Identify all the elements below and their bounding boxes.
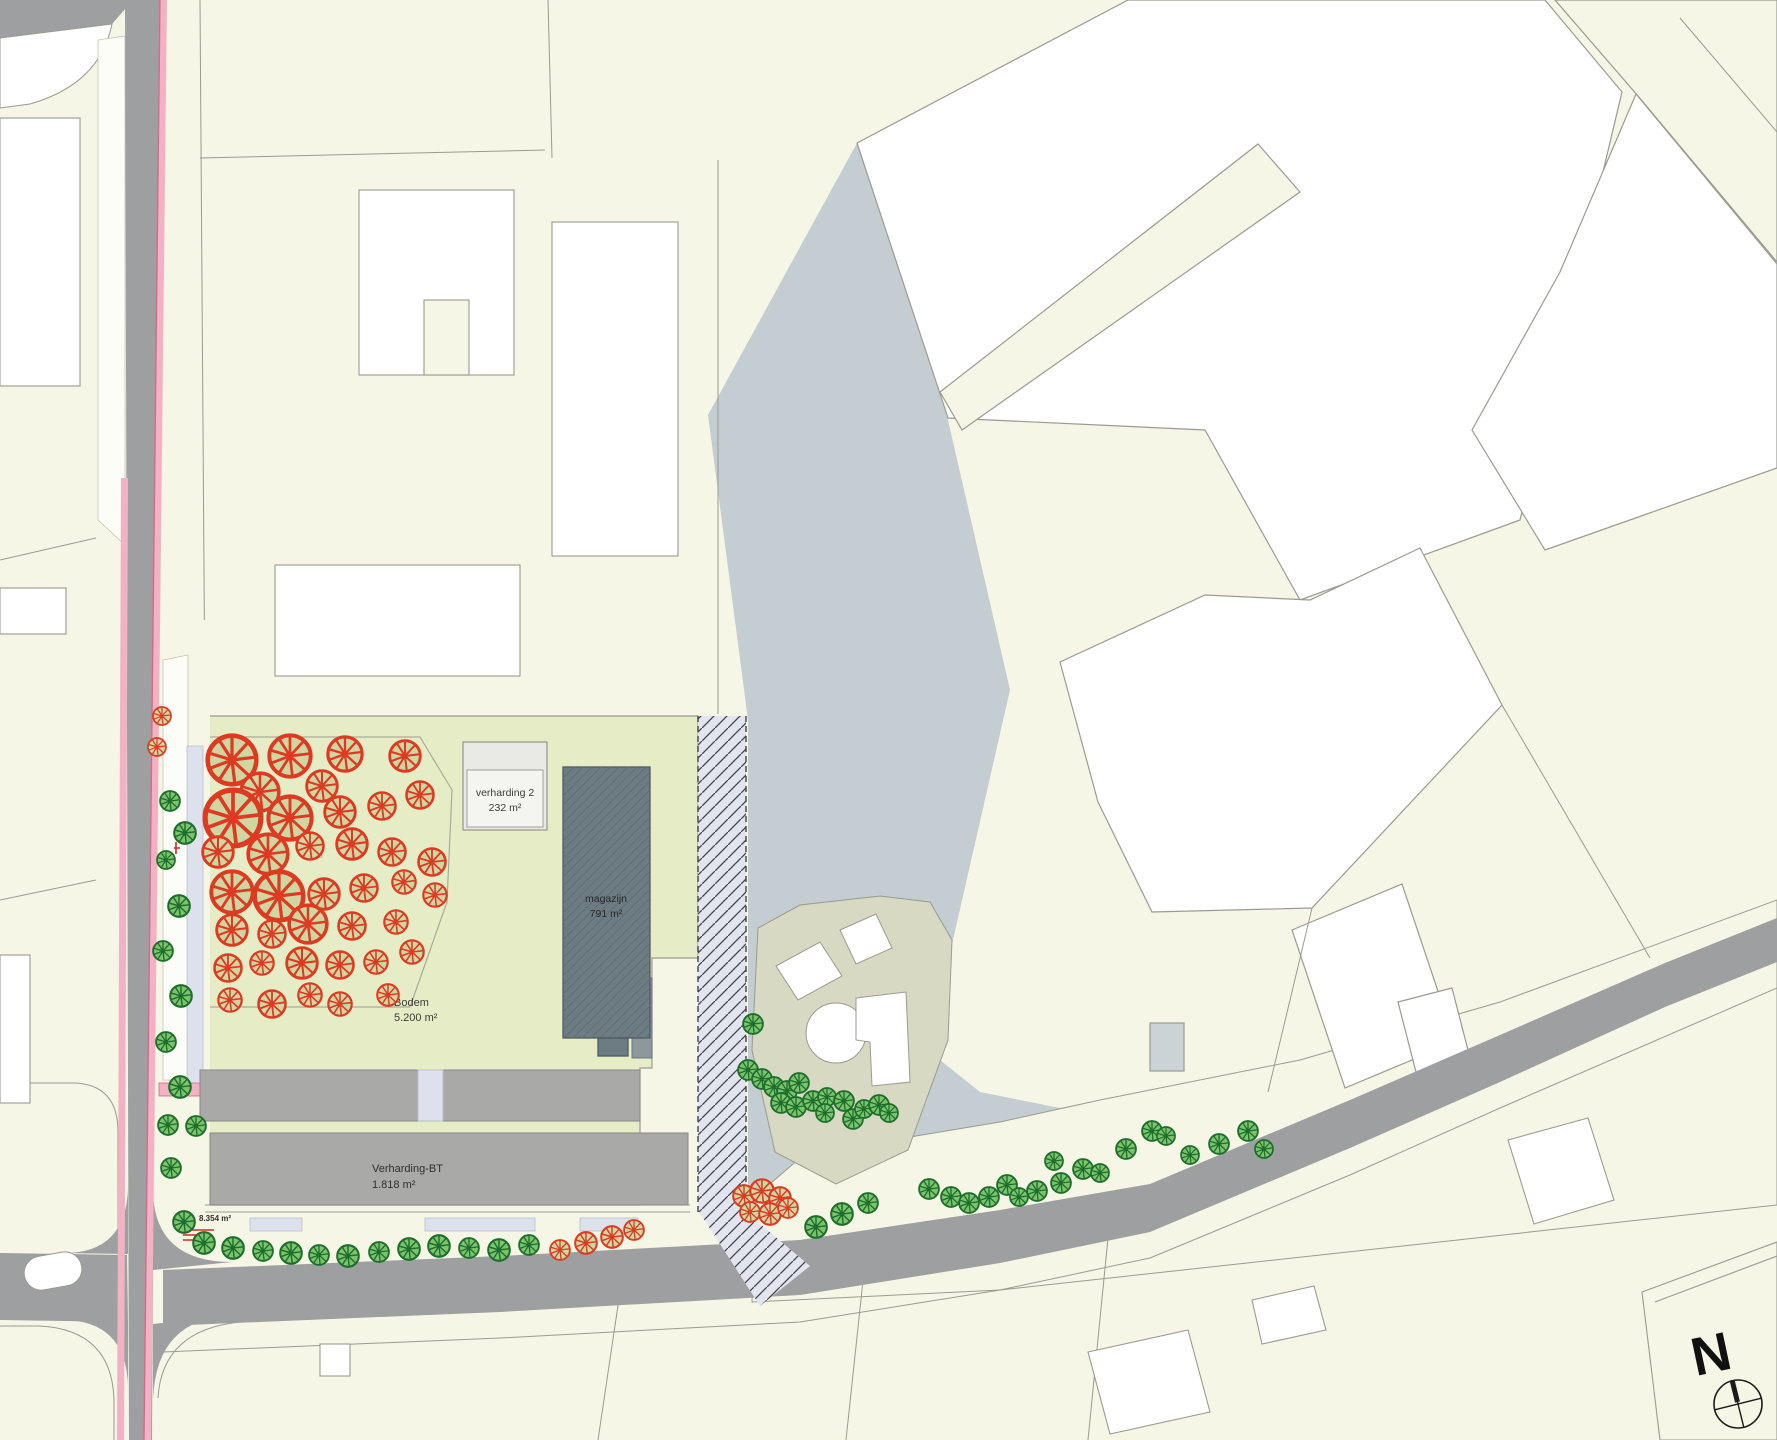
tree-green-icon bbox=[1116, 1139, 1136, 1159]
magazijn-building: magazijn 791 m² bbox=[563, 767, 650, 1056]
tree-green-icon bbox=[488, 1239, 510, 1261]
tree-green-icon bbox=[1209, 1134, 1229, 1154]
tree-green-icon bbox=[459, 1238, 479, 1258]
tree-green-icon bbox=[369, 1242, 389, 1262]
walkway-pad bbox=[418, 1070, 443, 1121]
tree-green-icon bbox=[156, 1032, 176, 1052]
tree-red-icon bbox=[379, 839, 406, 866]
tree-red-icon bbox=[215, 955, 242, 982]
tree-red-icon bbox=[218, 988, 241, 1011]
tree-red-icon bbox=[327, 952, 354, 979]
tree-green-icon bbox=[880, 1104, 898, 1122]
tree-red-icon bbox=[259, 991, 286, 1018]
tree-red-icon bbox=[337, 829, 368, 860]
tree-green-icon bbox=[1255, 1140, 1273, 1158]
tree-green-icon bbox=[1181, 1146, 1199, 1164]
tree-red-icon bbox=[211, 871, 252, 912]
tree-red-icon bbox=[325, 797, 356, 828]
tree-green-icon bbox=[170, 985, 192, 1007]
tree-green-icon bbox=[1157, 1127, 1175, 1145]
tree-green-icon bbox=[174, 822, 196, 844]
tree-green-icon bbox=[919, 1179, 939, 1199]
tree-red-icon bbox=[287, 948, 318, 979]
tree-green-icon bbox=[743, 1014, 763, 1034]
tree-red-icon bbox=[259, 921, 286, 948]
tree-red-icon bbox=[384, 910, 407, 933]
corner-area-label: 8.354 m² bbox=[199, 1214, 231, 1223]
tree-green-icon bbox=[428, 1235, 450, 1257]
gray-pad bbox=[1150, 1023, 1184, 1071]
tree-red-icon bbox=[248, 834, 288, 874]
tree-green-icon bbox=[309, 1245, 329, 1265]
tree-green-icon bbox=[161, 1158, 181, 1178]
tree-green-icon bbox=[959, 1193, 979, 1213]
tree-green-icon bbox=[1027, 1181, 1047, 1201]
tree-green-icon bbox=[169, 1076, 191, 1098]
tree-red-icon bbox=[307, 771, 338, 802]
tree-red-icon bbox=[423, 883, 446, 906]
tree-red-icon bbox=[148, 738, 166, 756]
verharding2-label: verharding 2 bbox=[476, 787, 535, 799]
tree-red-icon bbox=[575, 1232, 597, 1254]
magazijn-area: 791 m² bbox=[590, 908, 623, 920]
tree-red-icon bbox=[298, 983, 321, 1006]
parking-bt bbox=[210, 1133, 688, 1205]
tree-green-icon bbox=[193, 1232, 215, 1254]
sidewalk-strip bbox=[98, 36, 125, 545]
tree-red-icon bbox=[328, 737, 362, 771]
tree-red-icon bbox=[369, 793, 396, 820]
verharding2-box: verharding 2 232 m² bbox=[463, 742, 547, 830]
tree-green-icon bbox=[1091, 1164, 1109, 1182]
tree-green-icon bbox=[789, 1073, 809, 1093]
tree-red-icon bbox=[364, 950, 387, 973]
building-north-3 bbox=[275, 565, 520, 676]
tree-green-icon bbox=[805, 1216, 827, 1238]
site-plan-svg: verharding 2 232 m² magazijn 791 m² BOS … bbox=[0, 0, 1777, 1440]
tree-green-icon bbox=[816, 1104, 834, 1122]
tree-green-icon bbox=[831, 1203, 853, 1225]
tree-red-icon bbox=[601, 1226, 623, 1248]
tree-green-icon bbox=[280, 1242, 302, 1264]
footpath-strip bbox=[187, 746, 203, 1085]
tree-red-icon bbox=[390, 741, 421, 772]
tree-green-icon bbox=[158, 1115, 178, 1135]
verharding-bt-label: Verharding-BT bbox=[372, 1163, 443, 1175]
tree-red-icon bbox=[217, 915, 248, 946]
tree-green-icon bbox=[519, 1235, 539, 1255]
tree-green-icon bbox=[818, 1088, 836, 1106]
tree-red-icon bbox=[250, 951, 273, 974]
tree-green-icon bbox=[160, 791, 180, 811]
tree-red-icon bbox=[153, 707, 171, 725]
tree-red-icon bbox=[392, 870, 415, 893]
tree-green-icon bbox=[222, 1237, 244, 1259]
tree-green-icon bbox=[941, 1187, 961, 1207]
verharding-bt-area: 1.818 m² bbox=[372, 1179, 416, 1191]
bodem-area: 5.200 m² bbox=[394, 1012, 438, 1024]
tree-green-icon bbox=[168, 895, 190, 917]
tree-red-icon bbox=[328, 992, 351, 1015]
tree-red-icon bbox=[624, 1220, 644, 1240]
tree-red-icon bbox=[419, 849, 446, 876]
tree-red-icon bbox=[351, 875, 378, 902]
tree-red-icon bbox=[339, 913, 366, 940]
verharding2-area: 232 m² bbox=[489, 802, 522, 814]
tree-red-icon bbox=[377, 984, 399, 1006]
tree-red-icon bbox=[407, 782, 434, 809]
tree-red-icon bbox=[289, 905, 327, 943]
bodem-label: Bodem bbox=[394, 997, 429, 1009]
tree-red-icon bbox=[297, 833, 324, 860]
tree-green-icon bbox=[253, 1241, 273, 1261]
tree-red-icon bbox=[740, 1202, 760, 1222]
tree-green-icon bbox=[398, 1238, 420, 1260]
tree-green-icon bbox=[157, 851, 175, 869]
tree-red-icon bbox=[778, 1198, 798, 1218]
tree-green-icon bbox=[1010, 1188, 1028, 1206]
tree-red-icon bbox=[400, 940, 423, 963]
tree-red-icon bbox=[203, 837, 234, 868]
tree-red-icon bbox=[550, 1240, 570, 1260]
tree-red-icon bbox=[269, 735, 310, 776]
tree-green-icon bbox=[1045, 1152, 1063, 1170]
tree-green-icon bbox=[858, 1193, 878, 1213]
building-north-2 bbox=[552, 222, 678, 556]
tree-green-icon bbox=[1073, 1159, 1093, 1179]
tree-green-icon bbox=[834, 1091, 854, 1111]
tree-green-icon bbox=[1238, 1121, 1258, 1141]
site-plan-page: verharding 2 232 m² magazijn 791 m² BOS … bbox=[0, 0, 1777, 1440]
tree-green-icon bbox=[153, 941, 173, 961]
tree-green-icon bbox=[979, 1187, 999, 1207]
tree-green-icon bbox=[186, 1116, 206, 1136]
tree-green-icon bbox=[1051, 1173, 1071, 1193]
tree-green-icon bbox=[337, 1245, 359, 1267]
tree-green-icon bbox=[173, 1211, 195, 1233]
magazijn-label: magazijn bbox=[585, 893, 627, 905]
